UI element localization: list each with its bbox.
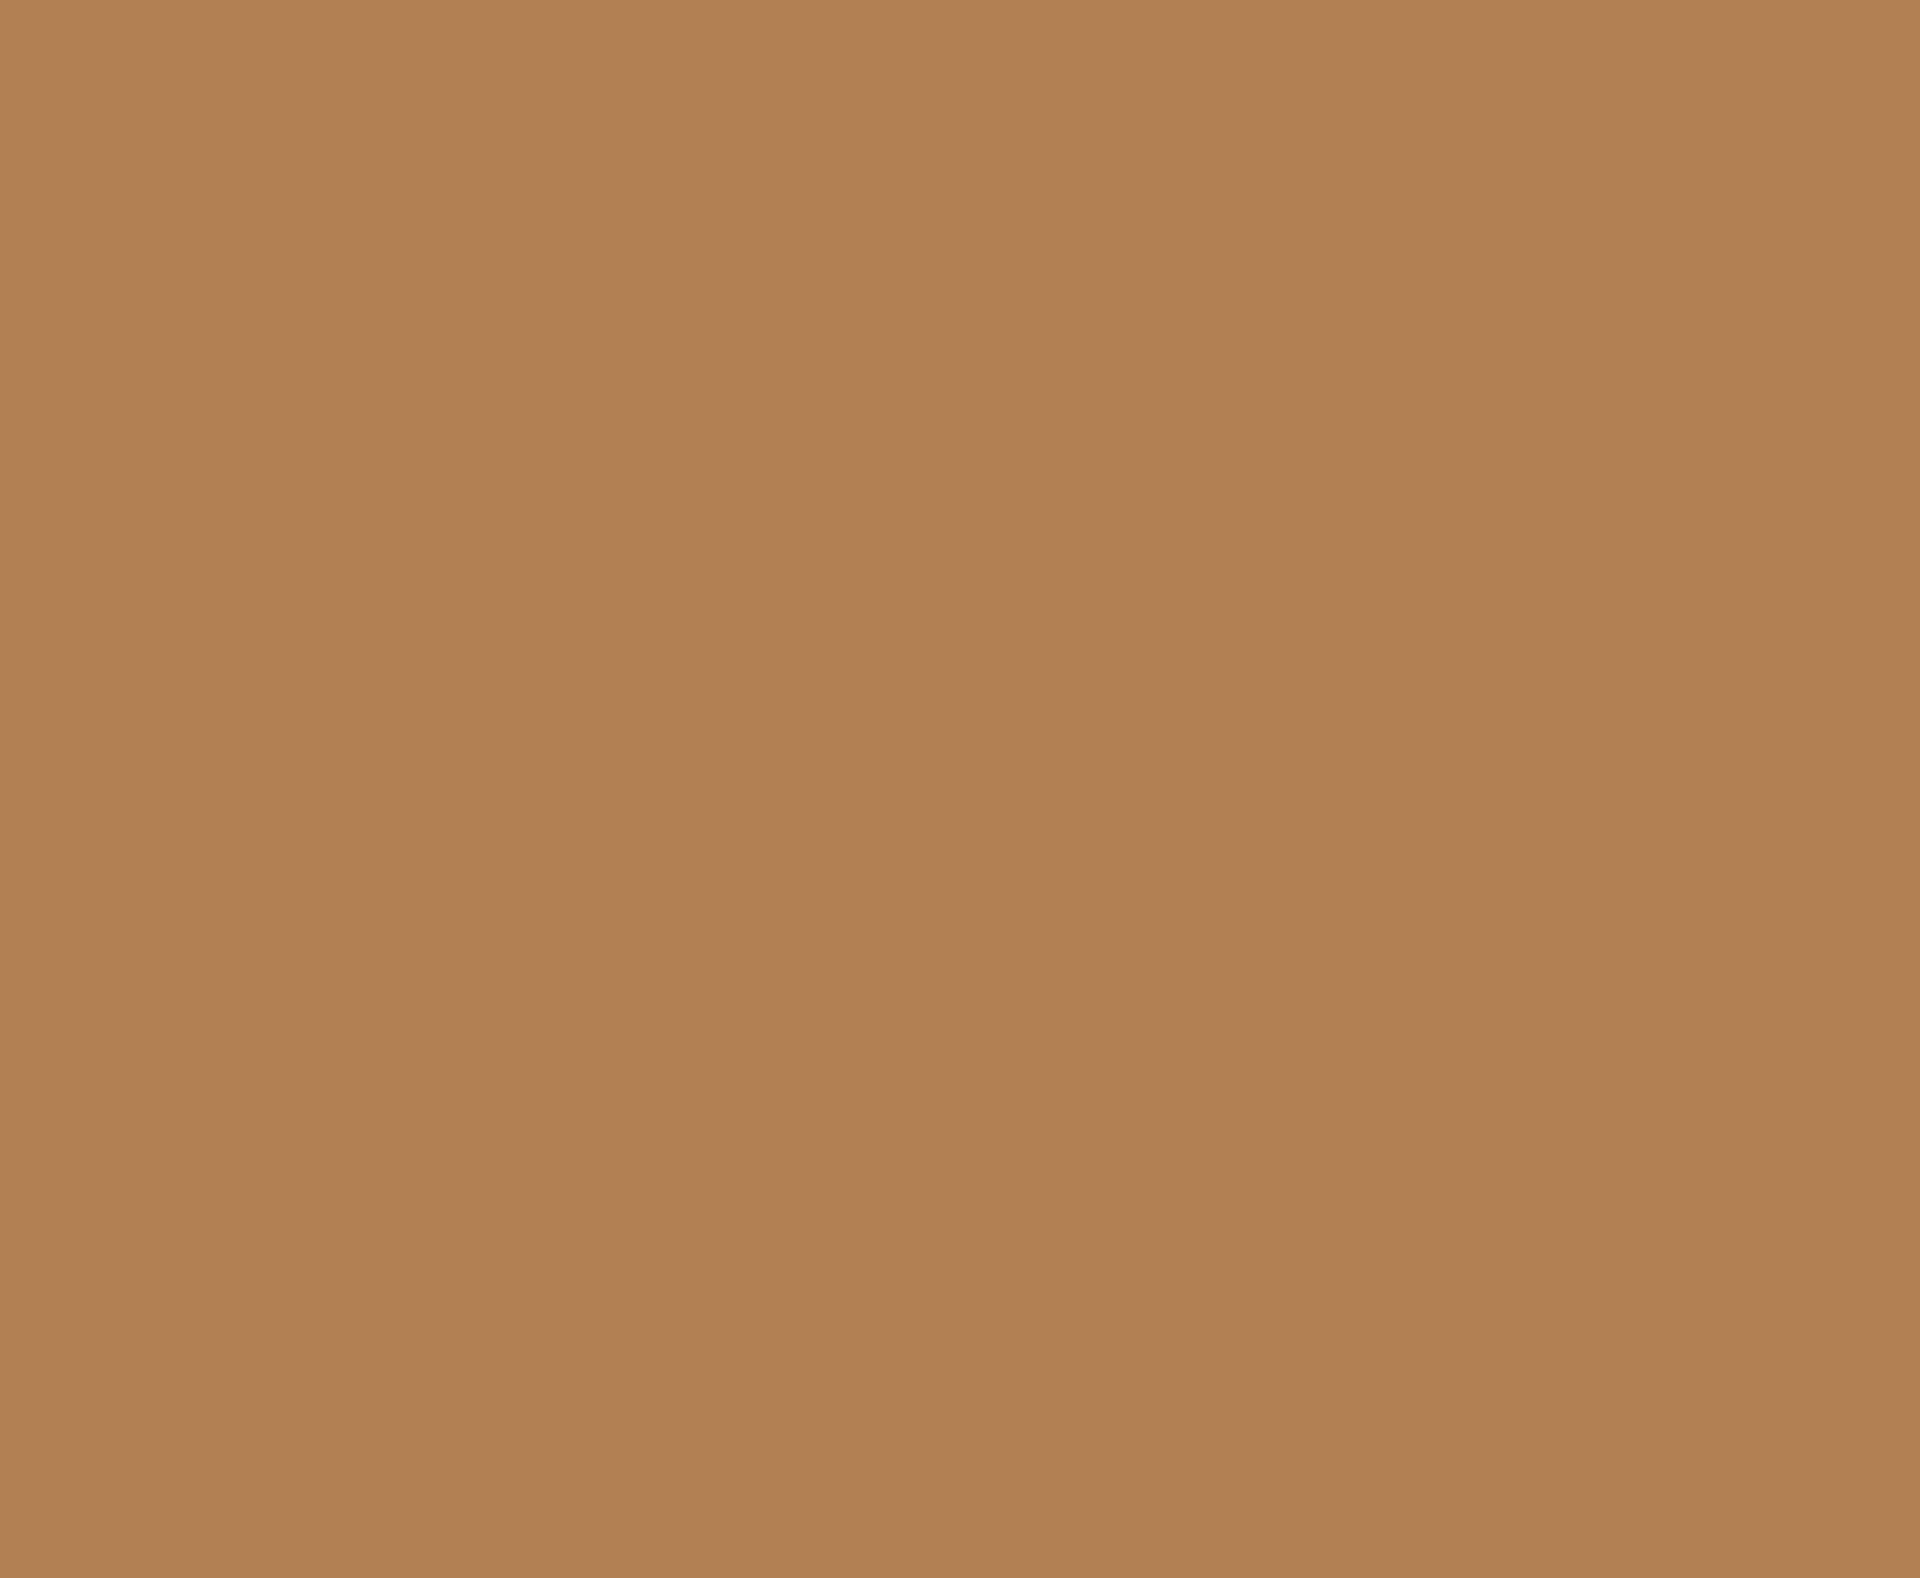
solid-color-background bbox=[0, 0, 1920, 1578]
